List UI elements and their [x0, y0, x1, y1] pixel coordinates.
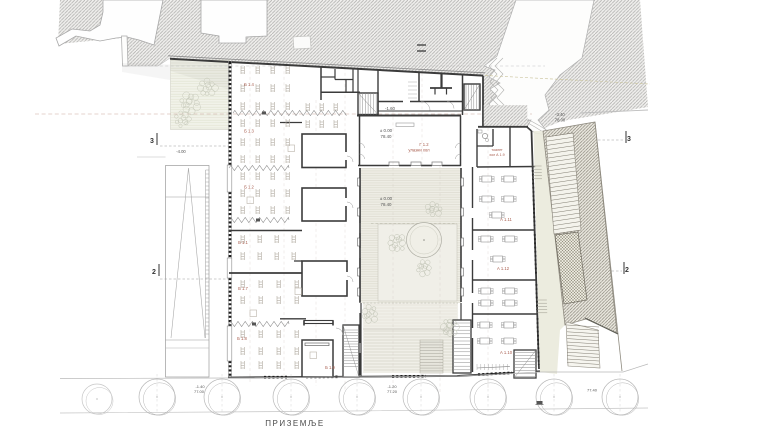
svg-text:улазни хол: улазни хол — [408, 148, 430, 153]
svg-text:77.40: 77.40 — [587, 388, 598, 393]
svg-text:Б 1.4: Б 1.4 — [244, 82, 254, 87]
svg-text:Б 1.9: Б 1.9 — [325, 365, 335, 370]
svg-text:Б 1.1: Б 1.1 — [238, 240, 248, 245]
svg-text:77.20: 77.20 — [387, 389, 398, 394]
svg-text:А 1.10: А 1.10 — [500, 350, 513, 355]
svg-text:-3.40: -3.40 — [555, 112, 565, 117]
svg-text:77.00: 77.00 — [194, 389, 205, 394]
svg-text:78.40: 78.40 — [381, 134, 393, 139]
svg-text:Г 1.2: Г 1.2 — [419, 142, 429, 147]
svg-text:78.00: 78.00 — [555, 118, 566, 123]
svg-text:± 0.00: ± 0.00 — [380, 196, 393, 201]
svg-text:-1.60: -1.60 — [385, 106, 396, 111]
svg-text:ПРИЗЕМЉЕ: ПРИЗЕМЉЕ — [265, 419, 324, 428]
svg-text:3: 3 — [150, 138, 154, 145]
svg-text:хол А 1.9: хол А 1.9 — [489, 153, 504, 157]
svg-text:± 0.00: ± 0.00 — [380, 128, 393, 133]
svg-text:Б 1.2: Б 1.2 — [244, 185, 254, 190]
svg-text:тоалет: тоалет — [491, 148, 503, 152]
svg-text:А 1.12: А 1.12 — [497, 266, 510, 271]
svg-text:3: 3 — [627, 136, 631, 143]
svg-text:Б 1.8: Б 1.8 — [237, 336, 247, 341]
svg-text:2: 2 — [625, 267, 629, 274]
svg-text:А 1.11: А 1.11 — [500, 217, 512, 222]
svg-text:Б 1.7: Б 1.7 — [238, 286, 248, 291]
svg-text:2: 2 — [152, 269, 156, 276]
svg-text:Б 1.3: Б 1.3 — [244, 129, 254, 134]
svg-text:-4.00: -4.00 — [176, 149, 186, 154]
svg-text:78.40: 78.40 — [381, 202, 393, 207]
